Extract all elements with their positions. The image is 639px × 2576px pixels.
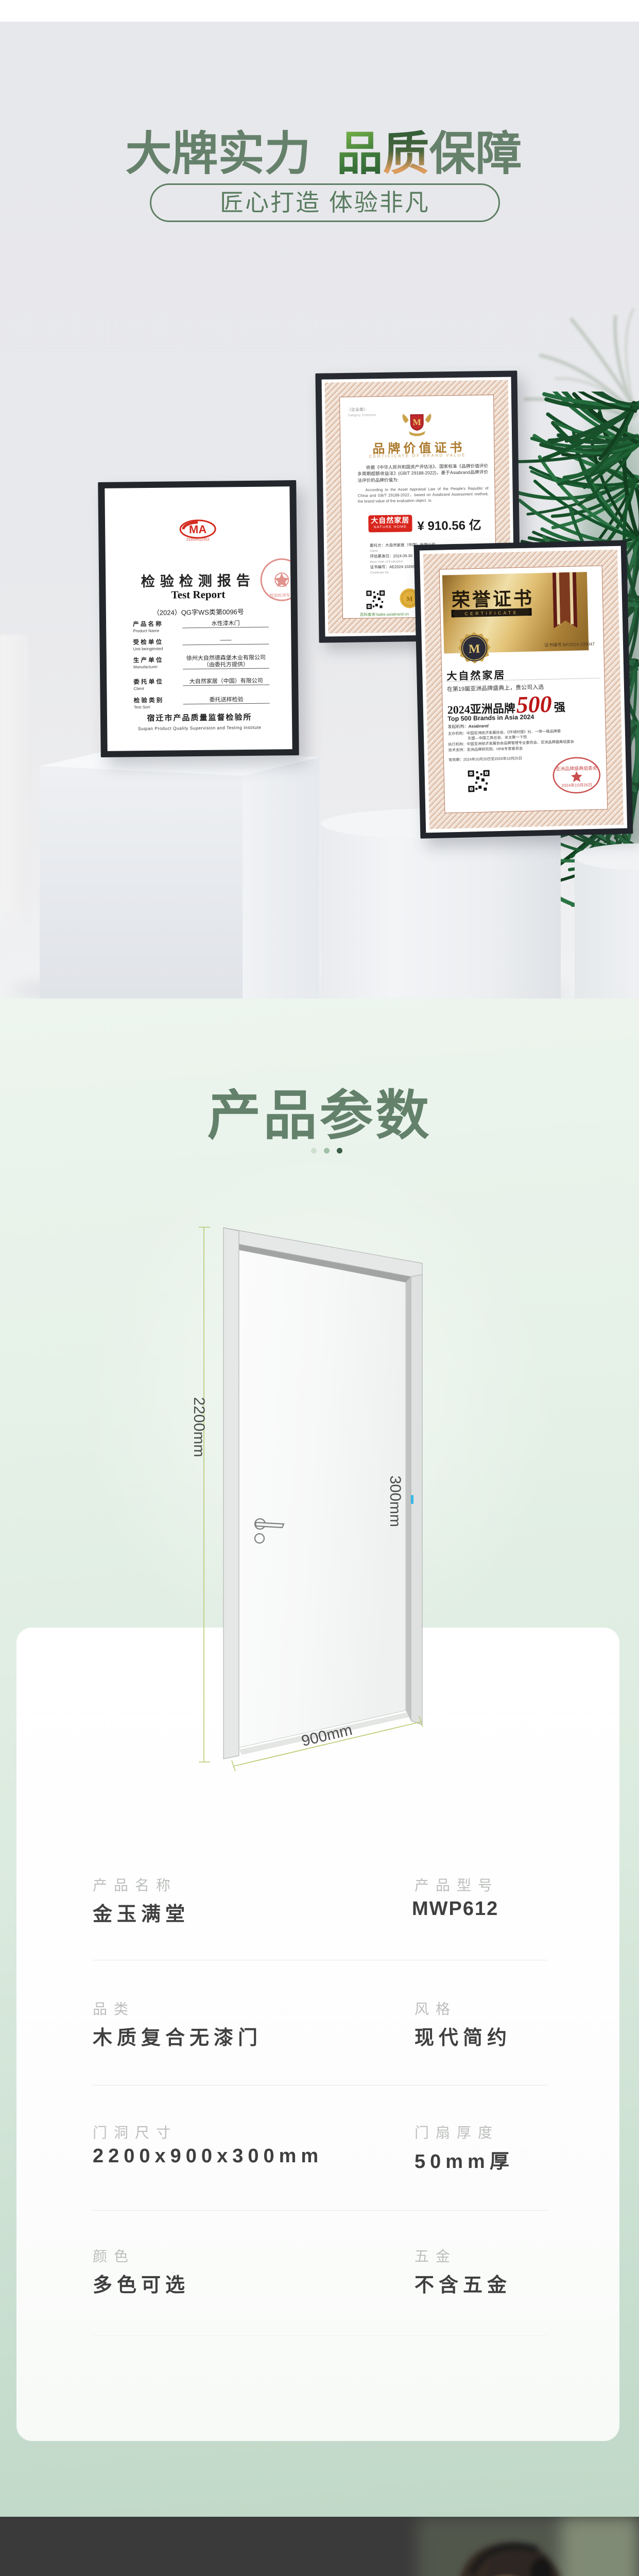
svg-text:MA: MA (189, 523, 207, 536)
svg-text:2200mm: 2200mm (191, 1397, 208, 1458)
svg-text:亚洲品牌盛典组委会: 亚洲品牌盛典组委会 (556, 765, 597, 772)
svg-text:M: M (406, 596, 412, 603)
svg-text:M: M (469, 642, 480, 656)
svg-text:M: M (413, 417, 421, 427)
svg-text:2024年10月26日: 2024年10月26日 (561, 782, 592, 788)
svg-text:211020112311: 211020112311 (186, 538, 210, 541)
svg-text:300mm: 300mm (387, 1476, 404, 1527)
svg-text:检验检测专用: 检验检测专用 (269, 592, 292, 598)
